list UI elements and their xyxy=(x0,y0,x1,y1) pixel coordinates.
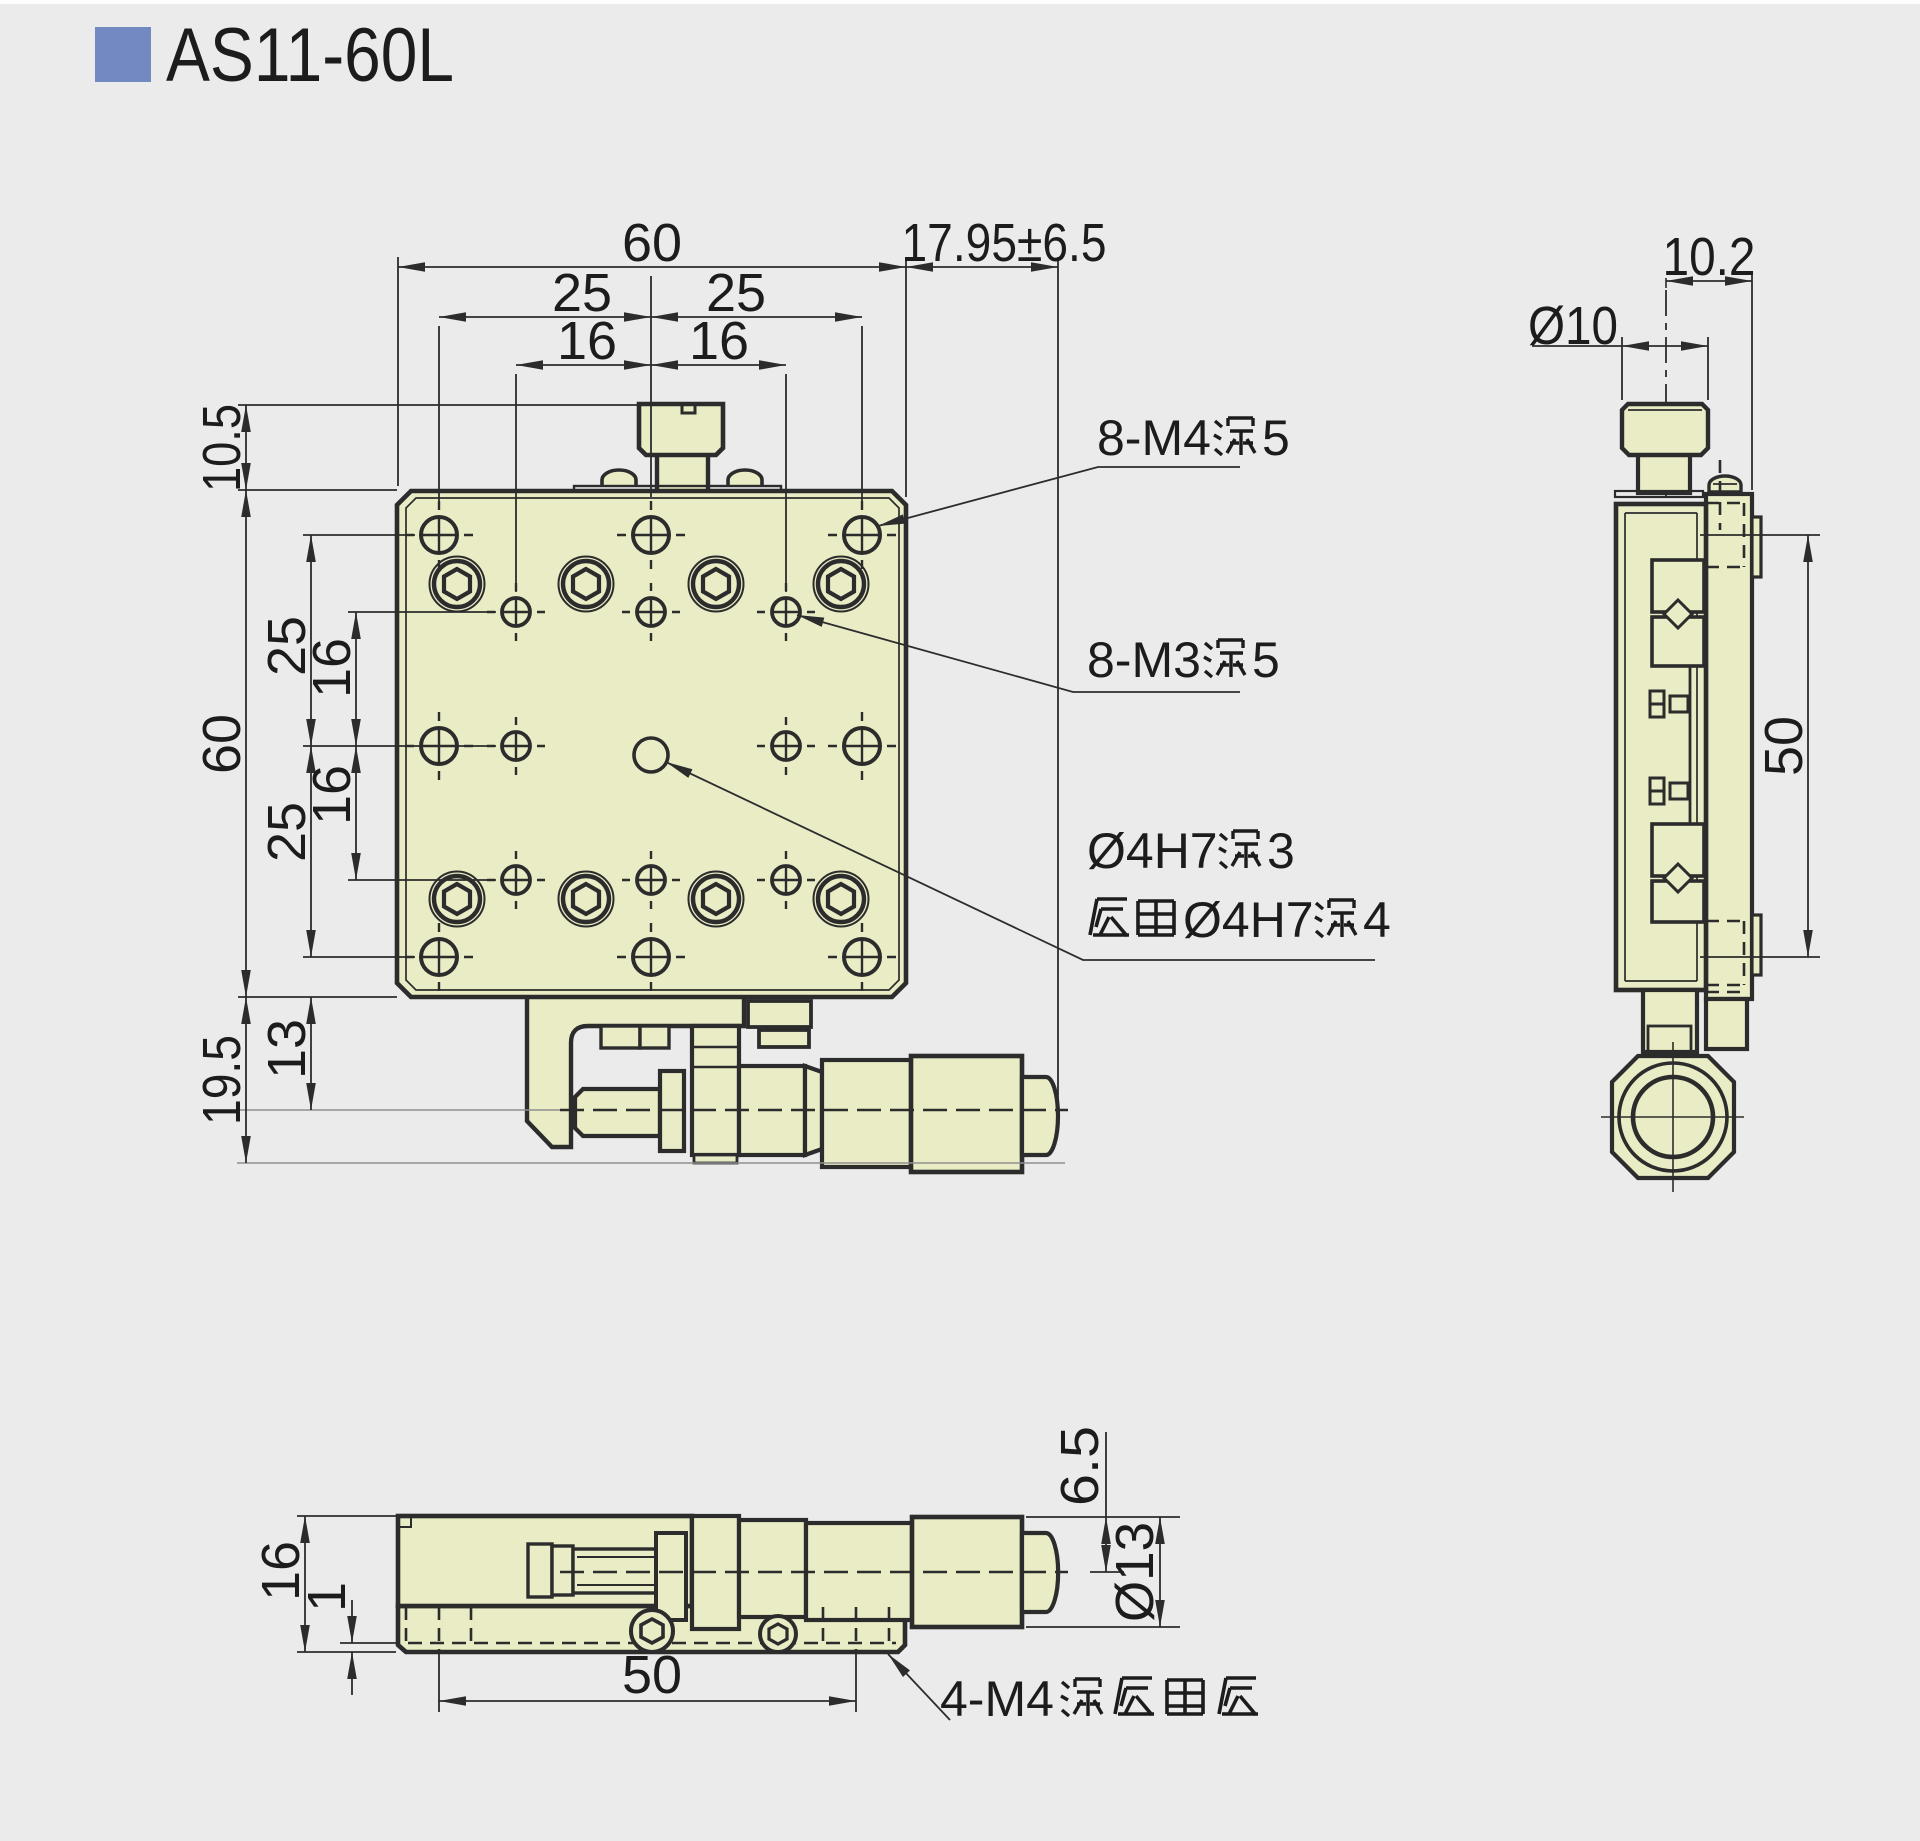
svg-text:6.5: 6.5 xyxy=(1050,1426,1110,1506)
svg-text:50: 50 xyxy=(1754,716,1814,776)
svg-text:60: 60 xyxy=(192,714,252,774)
svg-text:4: 4 xyxy=(1363,892,1391,948)
svg-text:25: 25 xyxy=(257,802,317,862)
svg-text:1: 1 xyxy=(297,1582,357,1612)
svg-text:Ø13: Ø13 xyxy=(1105,1522,1165,1622)
svg-text:Ø4H7: Ø4H7 xyxy=(1183,892,1314,948)
svg-text:16: 16 xyxy=(557,311,617,371)
svg-text:16: 16 xyxy=(689,311,749,371)
svg-text:10.2: 10.2 xyxy=(1663,227,1756,287)
svg-text:5: 5 xyxy=(1262,410,1290,466)
svg-text:3: 3 xyxy=(1267,823,1295,879)
svg-text:10.5: 10.5 xyxy=(192,404,252,492)
svg-text:19.5: 19.5 xyxy=(192,1035,252,1125)
svg-text:8-M3: 8-M3 xyxy=(1087,632,1201,688)
svg-text:60: 60 xyxy=(622,213,682,273)
svg-text:16: 16 xyxy=(302,638,362,698)
svg-text:Ø10: Ø10 xyxy=(1528,296,1618,356)
svg-text:Ø4H7: Ø4H7 xyxy=(1087,823,1218,879)
svg-text:17.95±6.5: 17.95±6.5 xyxy=(902,213,1107,273)
svg-text:8-M4: 8-M4 xyxy=(1097,410,1211,466)
svg-text:13: 13 xyxy=(257,1019,317,1079)
svg-text:50: 50 xyxy=(622,1645,682,1705)
svg-text:AS11-60L: AS11-60L xyxy=(166,13,454,98)
svg-text:5: 5 xyxy=(1252,632,1280,688)
svg-text:4-M4: 4-M4 xyxy=(940,1671,1054,1727)
